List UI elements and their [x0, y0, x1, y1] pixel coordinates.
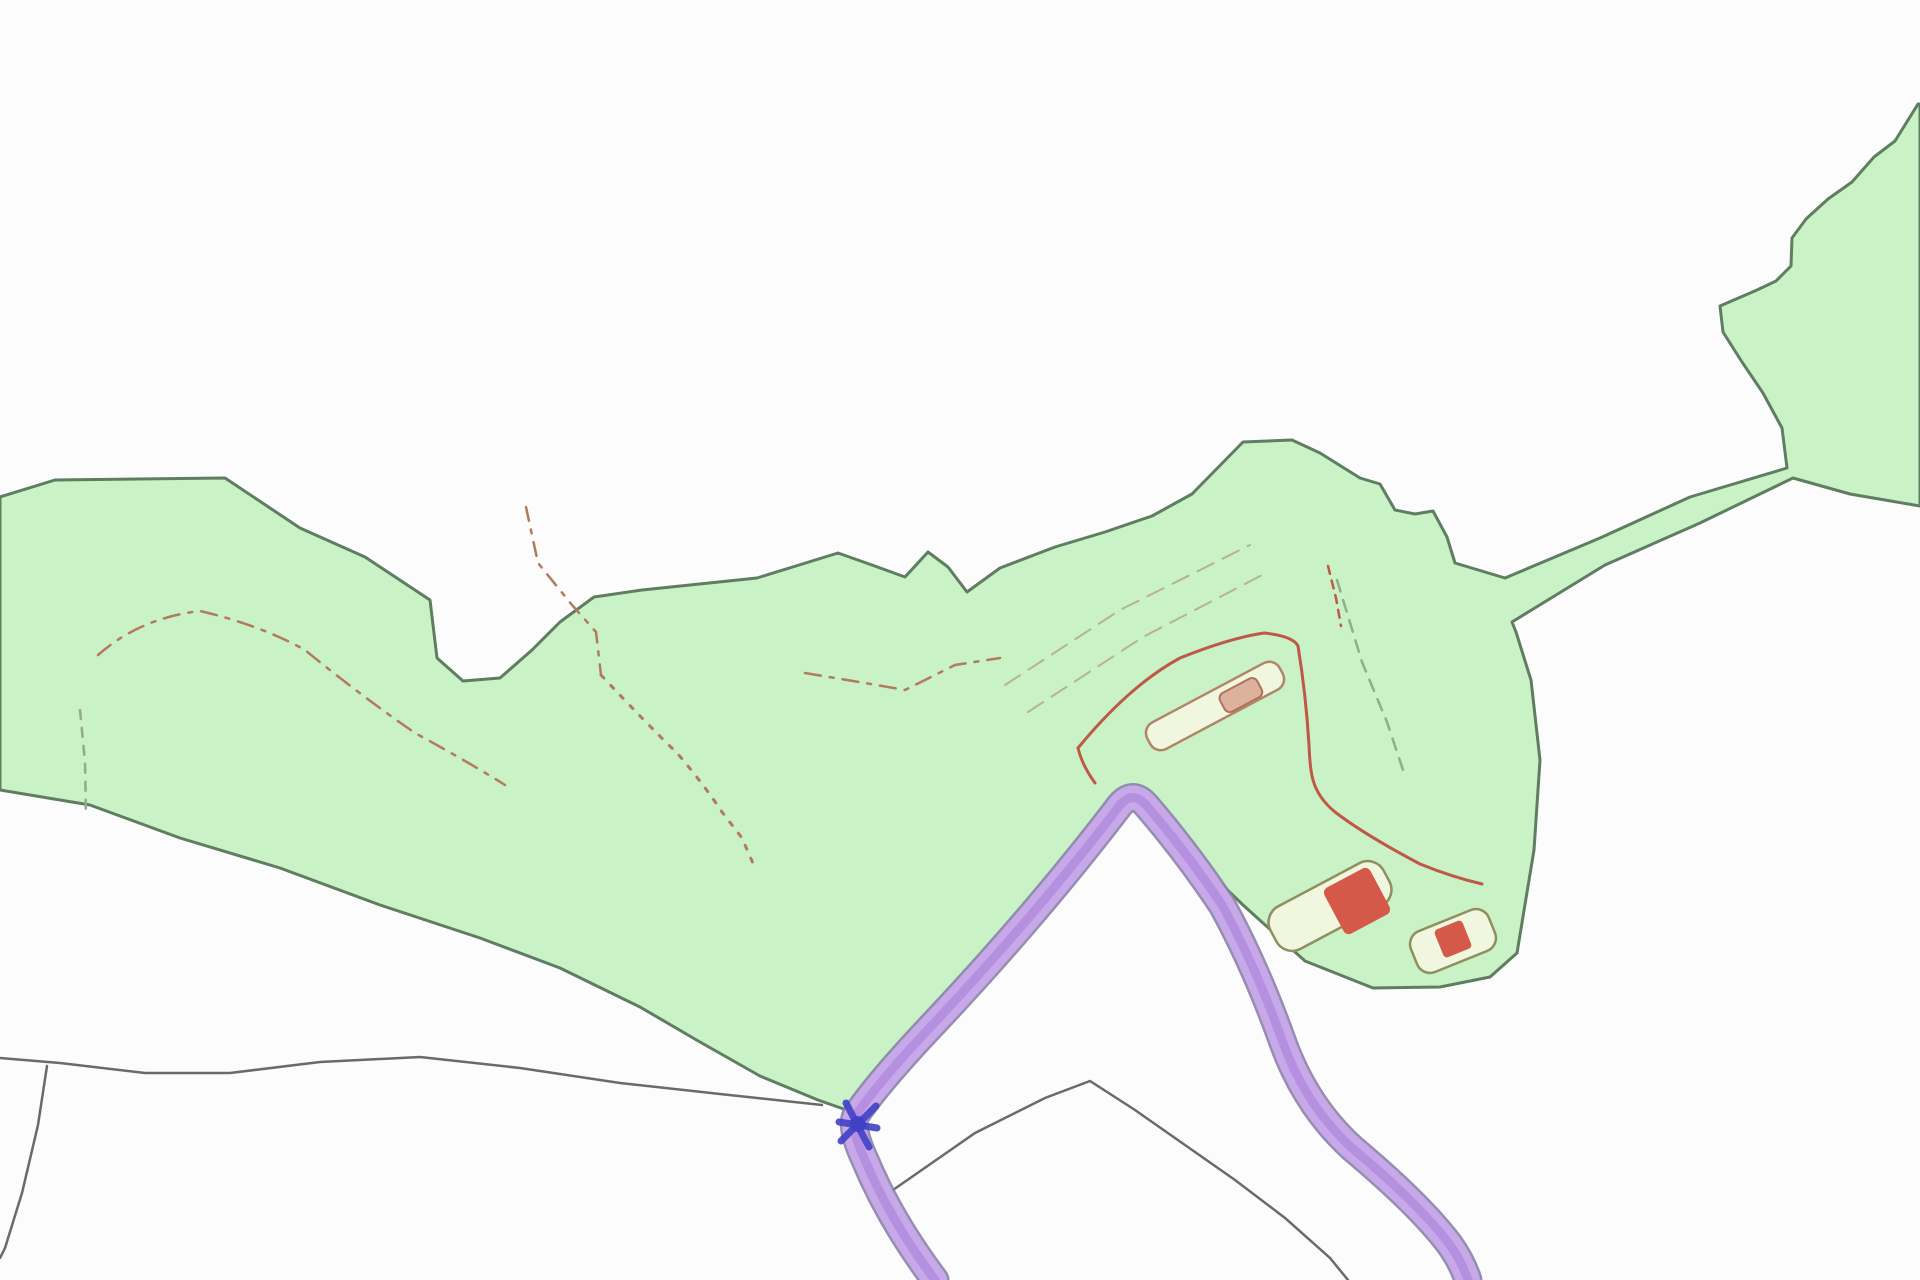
junction-marker-dot: [850, 1116, 866, 1132]
map-stage: [0, 0, 1920, 1280]
parcel-map: [0, 0, 1920, 1280]
